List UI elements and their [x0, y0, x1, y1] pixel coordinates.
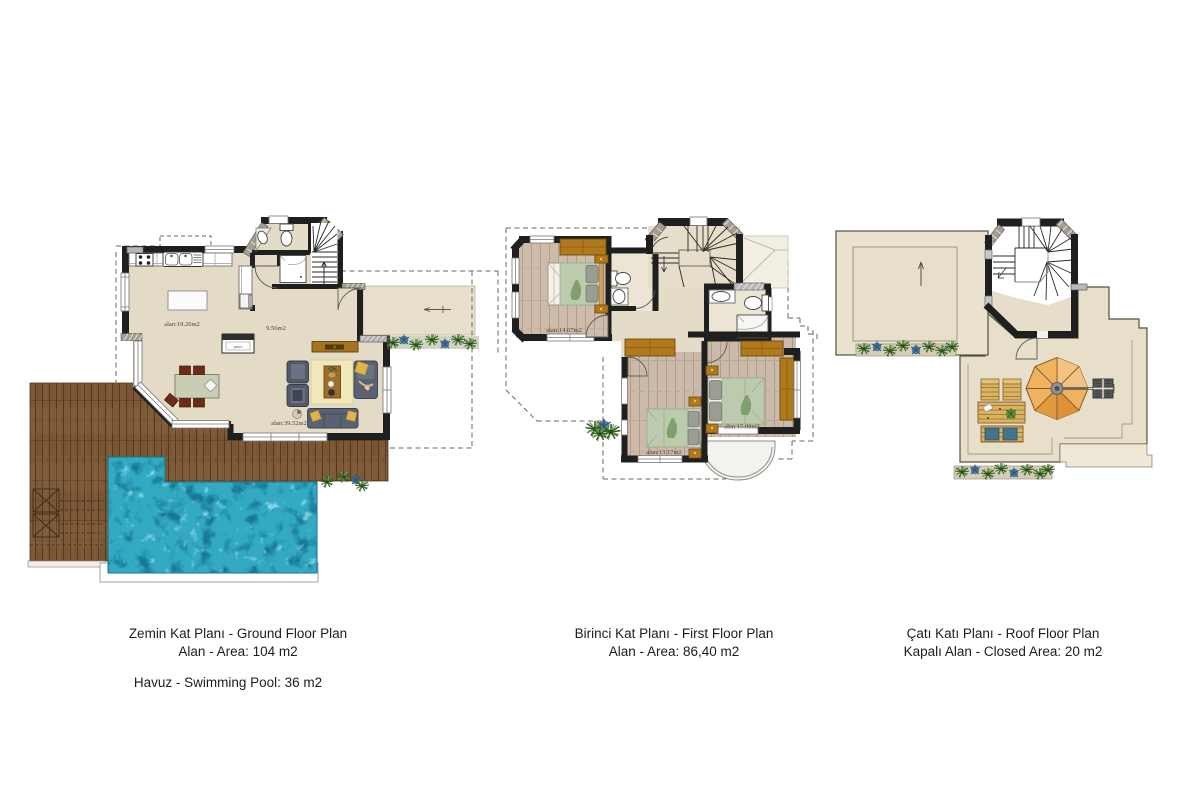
- svg-text:Birinci Kat Planı - First Floo: Birinci Kat Planı - First Floor Plan: [575, 626, 774, 641]
- svg-text:Havuz - Swimming Pool: 36 m2: Havuz - Swimming Pool: 36 m2: [134, 675, 322, 690]
- svg-text:Alan - Area: 86,40 m2: Alan - Area: 86,40 m2: [609, 644, 740, 659]
- svg-text:alan:14.67m2: alan:14.67m2: [546, 327, 582, 334]
- svg-text:Zemin Kat Planı - Ground Floor: Zemin Kat Planı - Ground Floor Plan: [129, 626, 347, 641]
- svg-text:piano: piano: [234, 345, 243, 349]
- svg-text:Çatı Katı Planı - Roof Floor P: Çatı Katı Planı - Roof Floor Plan: [907, 626, 1100, 641]
- svg-text:alan:39.52m2: alan:39.52m2: [271, 420, 307, 427]
- svg-text:alan:19.26m2: alan:19.26m2: [164, 321, 200, 328]
- svg-text:Alan - Area: 104 m2: Alan - Area: 104 m2: [178, 644, 297, 659]
- svg-text:alan:15.08m2: alan:15.08m2: [724, 424, 760, 431]
- svg-text:Kapalı Alan - Closed Area: 20: Kapalı Alan - Closed Area: 20 m2: [904, 644, 1103, 659]
- svg-text:9.56m2: 9.56m2: [266, 325, 286, 332]
- svg-text:alan:13.17m2: alan:13.17m2: [646, 449, 682, 456]
